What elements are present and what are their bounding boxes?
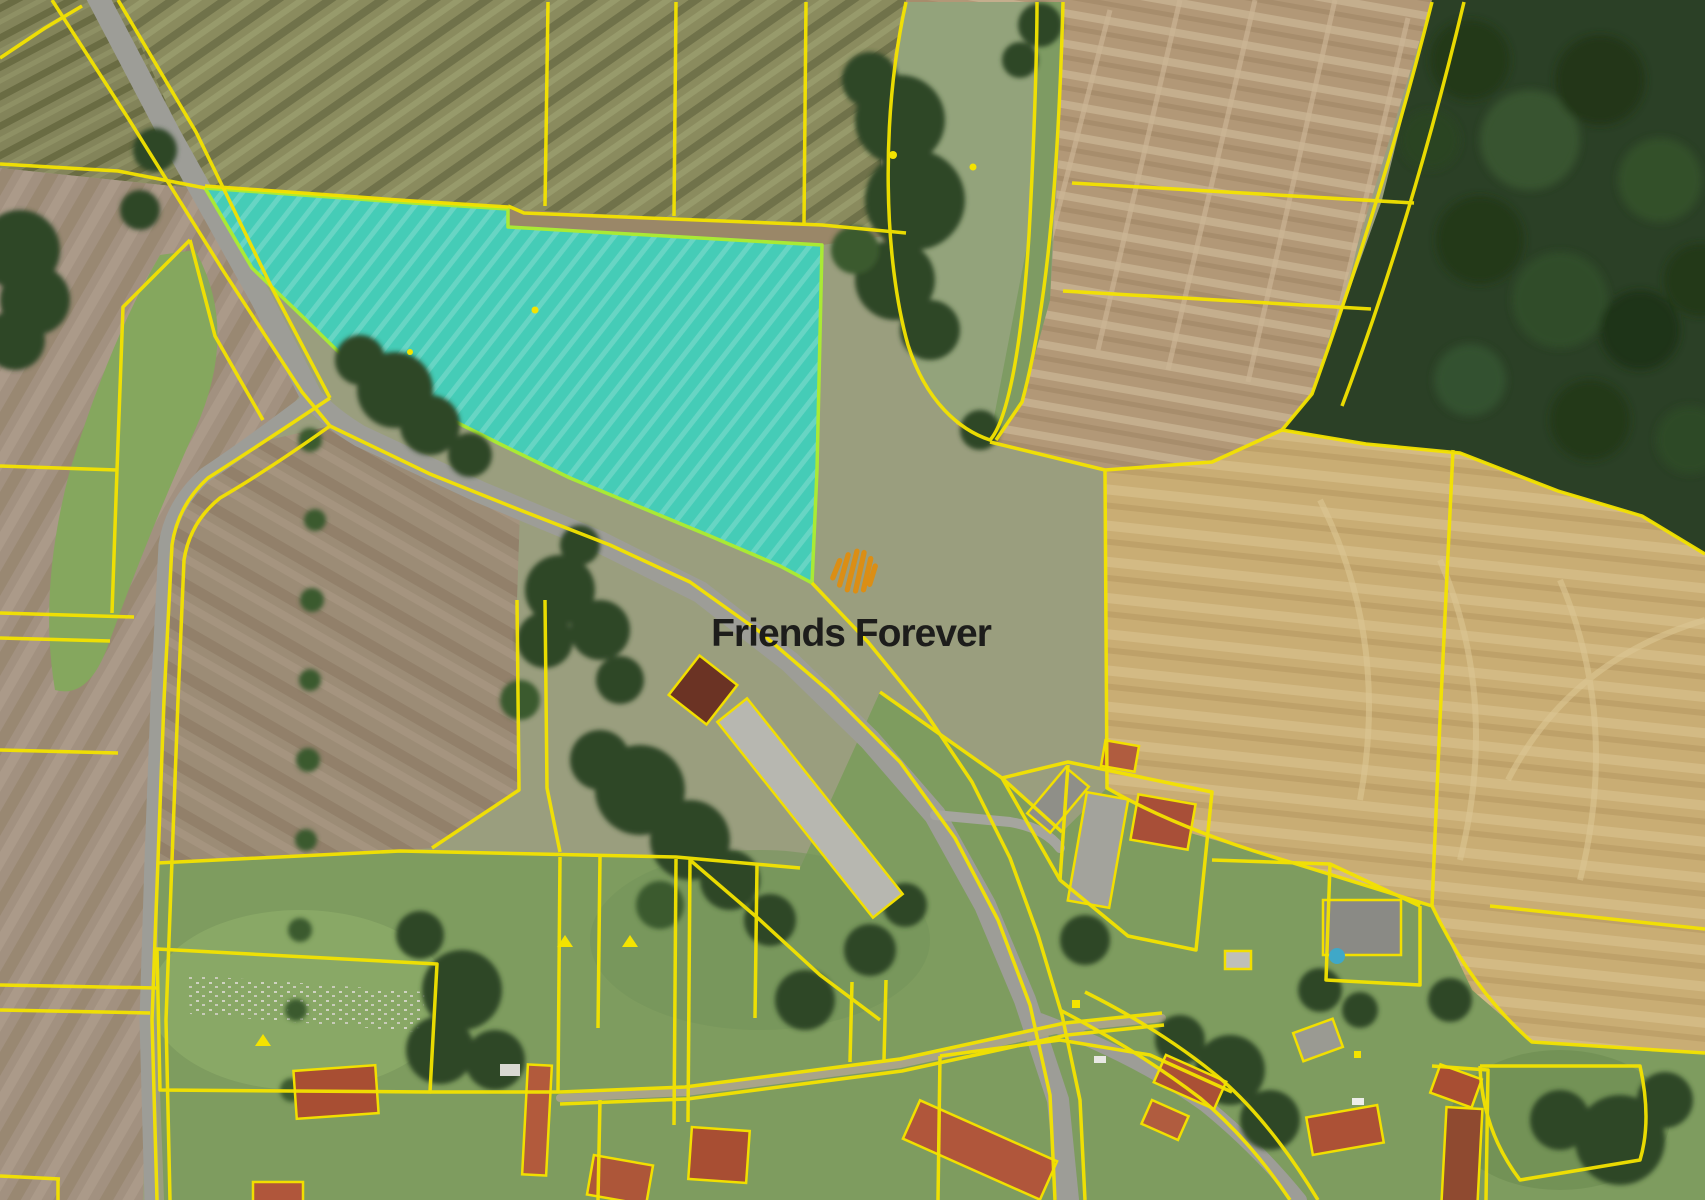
cadastral-map-image: Friends Forever <box>0 0 1705 1200</box>
modern-house <box>1323 900 1401 955</box>
map-canvas[interactable] <box>0 0 1705 1200</box>
pool <box>1329 948 1345 964</box>
watermark-brand-text: Friends Forever <box>711 612 991 656</box>
